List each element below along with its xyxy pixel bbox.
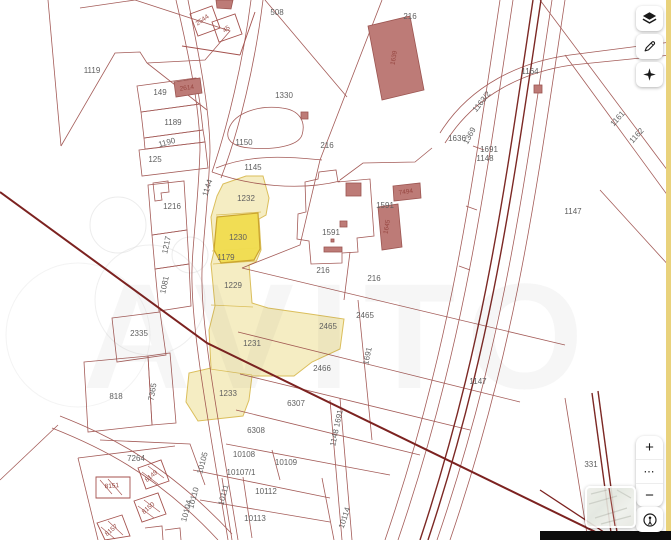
map-canvas[interactable] (0, 0, 671, 540)
main-road-line (0, 192, 616, 540)
zoom-more-button[interactable]: ⋯ (636, 459, 663, 483)
highlighted-parcels[interactable] (186, 176, 344, 421)
bottom-corner-bar (540, 531, 671, 540)
measure-button[interactable] (636, 34, 663, 59)
geolocate-button[interactable] (636, 507, 663, 532)
cadastral-map-view[interactable]: AVITO 1119149118911901252614254445508133… (0, 0, 671, 540)
building-2614 (174, 78, 202, 97)
layers-icon (641, 11, 658, 26)
zoom-control: + ⋯ − (636, 436, 663, 507)
minimap-thumbnail[interactable] (585, 486, 636, 528)
page-edge-strip (666, 0, 671, 540)
geolocation-icon (642, 512, 658, 528)
compass-button[interactable] (636, 62, 663, 87)
building-1639 (368, 16, 424, 100)
layers-button[interactable] (636, 6, 663, 31)
zoom-in-button[interactable]: + (636, 436, 663, 459)
building-7494 (393, 183, 421, 201)
highlighted-parcel-chain[interactable] (186, 176, 344, 421)
parcel-boundaries (0, 0, 671, 540)
pencil-icon (642, 39, 657, 54)
railway-track (420, 0, 618, 540)
building-1645 (378, 204, 402, 250)
selected-parcel-1230[interactable] (214, 213, 260, 263)
watermark-circles (6, 197, 208, 407)
building-top (216, 0, 233, 9)
zoom-out-button[interactable]: − (636, 483, 663, 507)
compass-icon (642, 67, 657, 82)
